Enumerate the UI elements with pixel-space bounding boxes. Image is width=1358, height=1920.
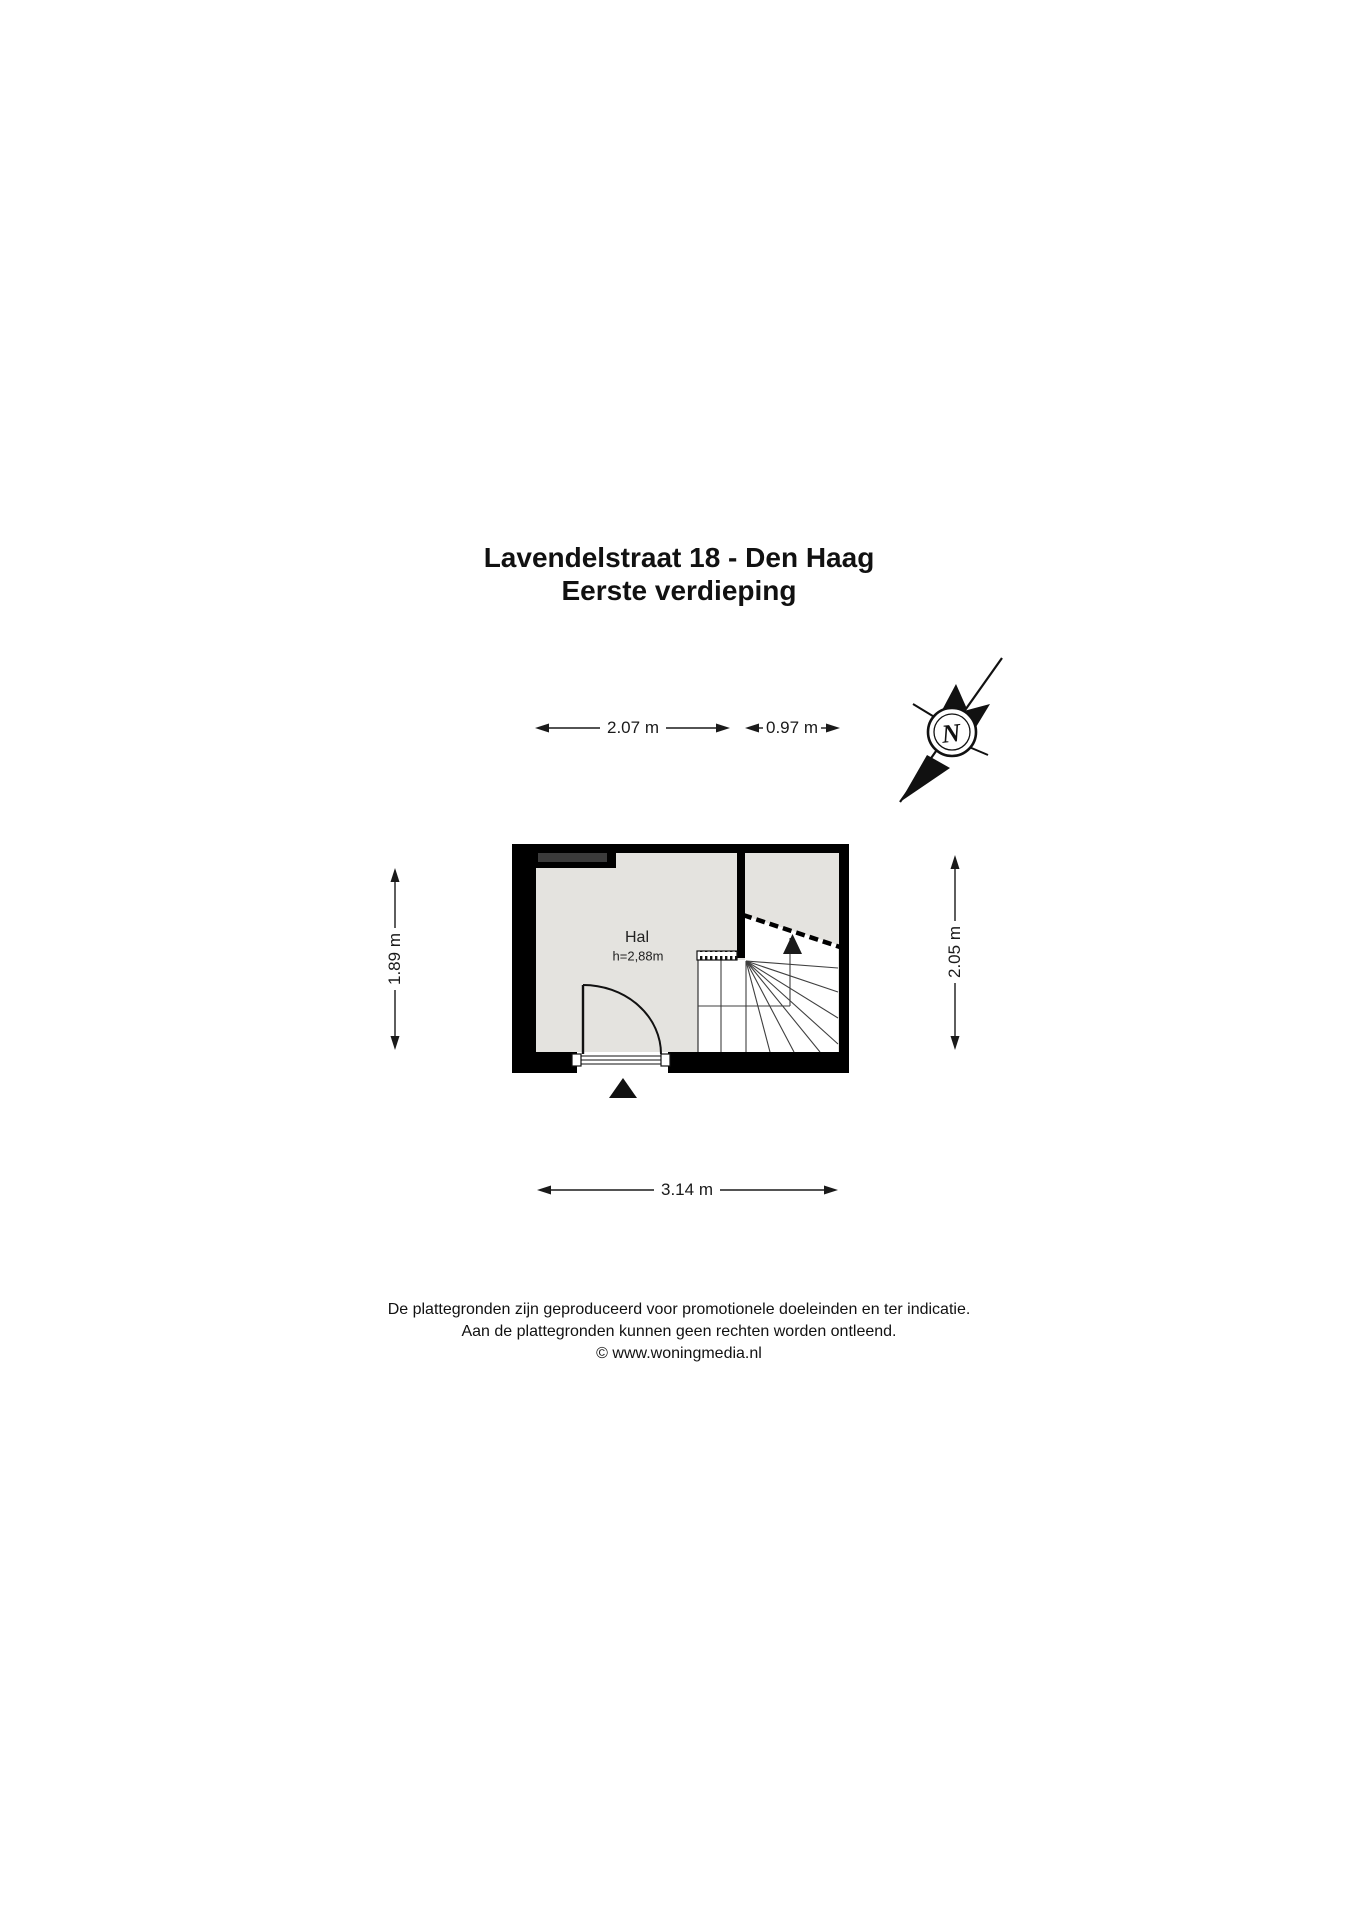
door-threshold	[581, 1056, 661, 1064]
dimension-bottom: 3.14 m	[658, 1180, 716, 1200]
plan-title-floor: Eerste verdieping	[0, 574, 1358, 607]
wall-right	[839, 844, 849, 1073]
dimension-top-right: 0.97 m	[763, 718, 821, 738]
dimension-left: 1.89 m	[385, 930, 405, 988]
wall-bottom-right	[668, 1052, 849, 1073]
plan-title: Lavendelstraat 18 - Den Haag Eerste verd…	[0, 541, 1358, 607]
plan-title-address: Lavendelstraat 18 - Den Haag	[0, 541, 1358, 574]
room-ceiling-height: h=2,88m	[613, 949, 664, 964]
footer-copyright: © www.woningmedia.nl	[0, 1343, 1358, 1365]
wall-left	[512, 844, 536, 1073]
footer-line-2: Aan de plattegronden kunnen geen rechten…	[0, 1321, 1358, 1343]
niche-bar	[538, 853, 607, 862]
door-jamb-right	[661, 1054, 670, 1066]
wall-bottom-left	[512, 1052, 577, 1073]
footer-line-1: De plattegronden zijn geproduceerd voor …	[0, 1299, 1358, 1321]
dimension-right: 2.05 m	[945, 923, 965, 981]
wall-interior	[737, 853, 745, 958]
north-compass-icon: N	[900, 658, 1002, 802]
floorplan-drawing: N	[0, 0, 1358, 1920]
floorplan-page: { "title": { "line1": "Lavendelstraat 18…	[0, 0, 1358, 1920]
footer-disclaimer: De plattegronden zijn geproduceerd voor …	[0, 1299, 1358, 1365]
stair-railing	[697, 951, 737, 960]
dimension-top-left: 2.07 m	[604, 718, 662, 738]
room-label-hal: Hal	[625, 929, 649, 947]
door-jamb-left	[572, 1054, 581, 1066]
entrance-arrow-icon	[609, 1078, 637, 1098]
